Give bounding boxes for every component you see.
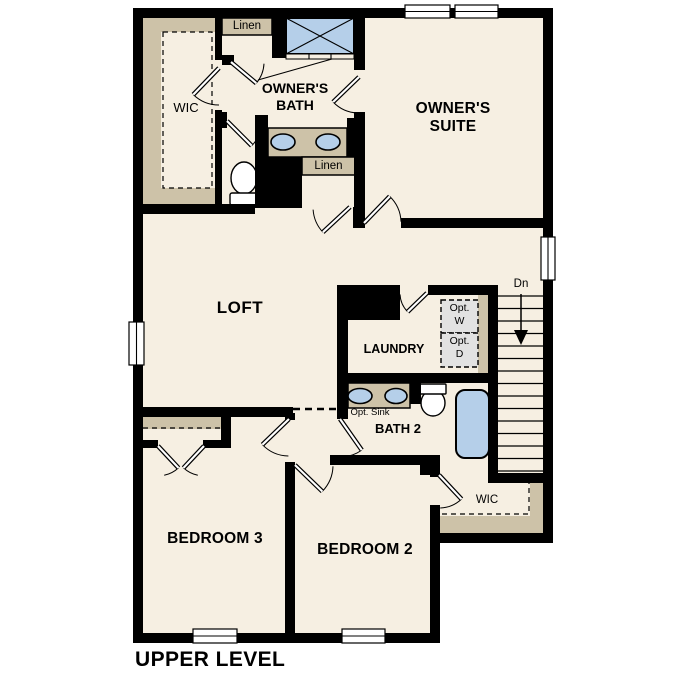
wall [430, 505, 440, 533]
wic2-shelf-right [530, 483, 543, 533]
wall [428, 285, 498, 295]
wall [337, 320, 348, 419]
wall [215, 18, 222, 60]
wall [218, 112, 227, 128]
bath2-sink-left [348, 389, 372, 404]
wall [255, 115, 268, 157]
wall [430, 465, 440, 477]
wic2-label: WIC [461, 494, 513, 508]
opt-washer-line2: W [441, 315, 478, 328]
owners-bath-toilet-tank [230, 193, 258, 205]
wall [272, 18, 286, 58]
owners-wic-shelf-bottom [161, 188, 215, 204]
bath2-label: BATH 2 [372, 421, 424, 436]
loft-label: LOFT [190, 298, 290, 318]
wall [337, 285, 400, 320]
wall [440, 533, 553, 543]
opt-washer-line1: Opt. [441, 302, 478, 315]
wall [354, 8, 365, 70]
plan-graphics [0, 0, 687, 687]
owners-bath-sink-right [316, 134, 340, 150]
wall [488, 473, 553, 483]
bedroom3-label: BEDROOM 3 [148, 530, 282, 548]
linen-mid-label: Linen [302, 157, 355, 175]
wic2-shelf-bottom [440, 516, 543, 533]
bedroom2-label: BEDROOM 2 [298, 541, 432, 559]
stairs-dn-label: Dn [505, 278, 537, 292]
wall [340, 373, 498, 383]
opt-dryer-line1: Opt. [441, 335, 478, 348]
floor-plan: OWNER'S SUITE OWNER'S BATH WIC LOFT LAUN… [0, 0, 687, 687]
opt-washer-label: Opt.W [441, 302, 478, 328]
laundry-label: LAUNDRY [352, 342, 436, 357]
wall [347, 118, 365, 157]
plan-title: UPPER LEVEL [135, 648, 355, 673]
wall [410, 383, 421, 404]
wall [488, 285, 498, 483]
opt-sink-label: Opt. Sink [343, 407, 397, 418]
owners-bath-sink-left [271, 134, 295, 150]
shower-curb [286, 54, 354, 59]
owners-wic-shelf-top [161, 18, 215, 32]
wall [255, 157, 302, 208]
owners-bath-toilet-bowl [231, 162, 257, 194]
opt-dryer-line2: D [441, 348, 478, 361]
wall [133, 204, 255, 214]
owners-bath-label: OWNER'S BATH [248, 80, 342, 113]
bath2-sink-right [385, 389, 407, 404]
wall [353, 207, 365, 228]
wall [285, 462, 295, 633]
linen-top-label: Linen [222, 18, 272, 35]
wall [133, 633, 440, 643]
bath2-toilet-tank [420, 384, 446, 394]
wall [133, 407, 293, 417]
wall [143, 440, 158, 448]
opt-dryer-label: Opt.D [441, 335, 478, 361]
owners-suite-label: OWNER'S SUITE [398, 100, 508, 137]
owners-wic-label: WIC [160, 100, 212, 115]
laundry-shelf [478, 290, 488, 373]
wall [401, 218, 553, 228]
wall [203, 440, 231, 448]
bathtub [456, 390, 489, 458]
owners-wic-shelf-left [143, 18, 161, 204]
bedroom3-closet-shelf [143, 417, 221, 429]
